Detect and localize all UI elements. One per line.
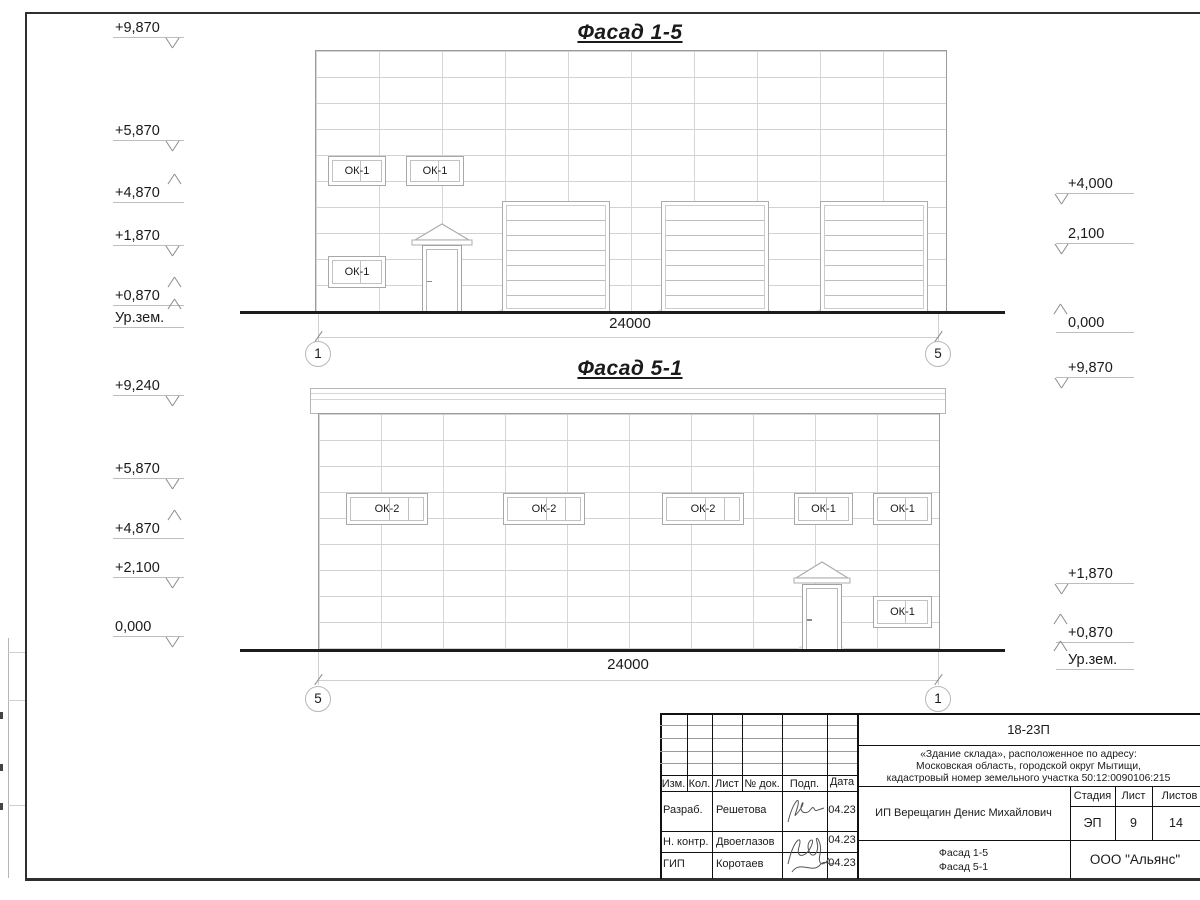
elevation-mark: +9,870 — [113, 20, 184, 38]
window-ok1: ОК-1 — [794, 493, 853, 525]
window-label: ОК-2 — [663, 494, 743, 524]
project-line2: Московская область, городской округ Мыти… — [857, 761, 1200, 772]
level-arrow-down-icon — [165, 577, 179, 588]
elevation-mark: +4,870 — [113, 521, 184, 539]
elevation-mark: +4,000 — [1056, 176, 1134, 194]
client-name: ИП Верещагин Денис Михайлович — [857, 807, 1070, 819]
frame-bottom-border — [25, 878, 1200, 881]
stage-label: Стадия — [1070, 790, 1115, 802]
entrance-door — [422, 245, 462, 314]
elevation-mark: Ур.зем. — [113, 310, 184, 328]
elevation-mark: +2,100 — [113, 560, 184, 578]
garage-door — [820, 201, 928, 313]
level-arrow-down-icon — [165, 478, 179, 489]
margin-divider — [8, 805, 25, 806]
sheets-total: 14 — [1152, 816, 1200, 830]
col-list: Лист — [712, 778, 742, 790]
level-arrow-up-icon — [168, 299, 182, 310]
margin-column-line — [8, 638, 9, 878]
elevation-mark: +5,870 — [113, 123, 184, 141]
window-ok1: ОК-1 — [328, 256, 386, 288]
drawing-sheet: Фасад 1-5 ОК-1 ОК-1 ОК-1 — [0, 0, 1200, 900]
window-label: ОК-1 — [795, 494, 852, 524]
window-label: ОК-2 — [504, 494, 584, 524]
window-label: ОК-1 — [874, 597, 931, 627]
garage-door — [661, 201, 769, 313]
sheets-label: Листов — [1152, 790, 1200, 802]
level-arrow-down-icon — [165, 245, 179, 256]
level-arrow-down-icon — [1054, 243, 1068, 254]
garage-slats — [506, 205, 606, 309]
dimension-line — [318, 680, 938, 681]
col-podp: Подп. — [782, 778, 827, 790]
level-arrow-down-icon — [1054, 193, 1068, 204]
col-kol: Кол. — [687, 778, 712, 790]
project-line3: кадастровый номер земельного участка 50:… — [857, 773, 1200, 784]
elevation-mark: +4,870 — [113, 185, 184, 203]
col-doc: № док. — [742, 778, 782, 790]
level-arrow-up-icon — [168, 510, 182, 521]
margin-divider — [8, 652, 25, 653]
door-canopy — [411, 221, 473, 247]
facade2-title: Фасад 5-1 — [315, 357, 945, 381]
level-arrow-up-icon — [1054, 304, 1068, 315]
row-name: Решетова — [716, 804, 766, 816]
ground-line — [240, 311, 1005, 314]
elevation-mark: 2,100 — [1056, 226, 1134, 244]
window-ok2: ОК-2 — [503, 493, 585, 525]
window-ok1: ОК-1 — [873, 493, 932, 525]
row-name: Коротаев — [716, 858, 764, 870]
elevation-mark: Ур.зем. — [1056, 652, 1134, 670]
frame-left-border — [25, 12, 27, 880]
level-arrow-up-icon — [1054, 614, 1068, 625]
elevation-mark: 0,000 — [113, 619, 184, 637]
axis-bubble: 1 — [925, 686, 951, 712]
window-ok1: ОК-1 — [406, 156, 464, 186]
content-line2: Фасад 5-1 — [857, 861, 1070, 873]
window-ok1: ОК-1 — [873, 596, 932, 628]
level-arrow-down-icon — [1054, 377, 1068, 388]
facade2-elevation: ОК-2 ОК-2 ОК-2 ОК-1 ОК-1 О — [318, 413, 940, 652]
elevation-mark: +1,870 — [1056, 566, 1134, 584]
door-handle — [427, 281, 432, 283]
stage-value: ЭП — [1070, 816, 1115, 830]
sheet-number: 9 — [1115, 816, 1152, 830]
project-line1: «Здание склада», расположенное по адресу… — [857, 749, 1200, 760]
level-arrow-down-icon — [165, 395, 179, 406]
doc-number: 18-23П — [857, 722, 1200, 737]
window-label: ОК-1 — [407, 157, 463, 185]
company-name: ООО "Альянс" — [1070, 852, 1200, 867]
row-role: Разраб. — [663, 804, 703, 816]
elevation-mark: +1,870 — [113, 228, 184, 246]
window-ok1: ОК-1 — [328, 156, 386, 186]
facade2-parapet-band — [310, 388, 946, 414]
level-arrow-up-icon — [1054, 641, 1068, 652]
level-arrow-down-icon — [165, 37, 179, 48]
margin-mark — [0, 764, 3, 771]
level-arrow-up-icon — [168, 277, 182, 288]
window-label: ОК-1 — [329, 257, 385, 287]
row-role: Н. контр. — [663, 836, 708, 848]
elevation-mark: 0,000 — [1056, 315, 1134, 333]
col-data: Дата — [827, 776, 857, 788]
row-date: 04.23 — [827, 804, 857, 816]
window-label: ОК-1 — [874, 494, 931, 524]
axis-bubble: 5 — [305, 686, 331, 712]
signature-dvoeglazov-korotaev — [782, 832, 838, 878]
garage-slats — [824, 205, 924, 309]
door-handle — [807, 619, 812, 621]
dimension-line — [318, 337, 938, 338]
level-arrow-down-icon — [165, 140, 179, 151]
window-ok2: ОК-2 — [346, 493, 428, 525]
margin-mark — [0, 803, 3, 810]
window-label: ОК-2 — [347, 494, 427, 524]
level-arrow-up-icon — [168, 174, 182, 185]
dimension-text: 24000 — [318, 656, 938, 673]
elevation-mark: +9,870 — [1056, 360, 1134, 378]
elevation-mark: +9,240 — [113, 378, 184, 396]
margin-mark — [0, 712, 3, 719]
door-canopy — [793, 559, 851, 585]
margin-divider — [8, 700, 25, 701]
row-role: ГИП — [663, 858, 685, 870]
window-label: ОК-1 — [329, 157, 385, 185]
content-line1: Фасад 1-5 — [857, 847, 1070, 859]
sheet-label: Лист — [1115, 790, 1152, 802]
frame-top-border — [25, 12, 1200, 14]
elevation-mark: +5,870 — [113, 461, 184, 479]
ground-line — [240, 649, 1005, 652]
garage-slats — [665, 205, 765, 309]
entrance-door — [802, 584, 842, 652]
level-arrow-down-icon — [1054, 583, 1068, 594]
window-ok2: ОК-2 — [662, 493, 744, 525]
dimension-text: 24000 — [315, 315, 945, 332]
facade1-elevation: ОК-1 ОК-1 ОК-1 — [315, 50, 947, 314]
facade1-title: Фасад 1-5 — [315, 21, 945, 45]
level-arrow-down-icon — [165, 636, 179, 647]
garage-door — [502, 201, 610, 313]
signature-reshetova — [784, 792, 826, 830]
col-izm: Изм. — [660, 778, 687, 790]
row-name: Двоеглазов — [716, 836, 774, 848]
